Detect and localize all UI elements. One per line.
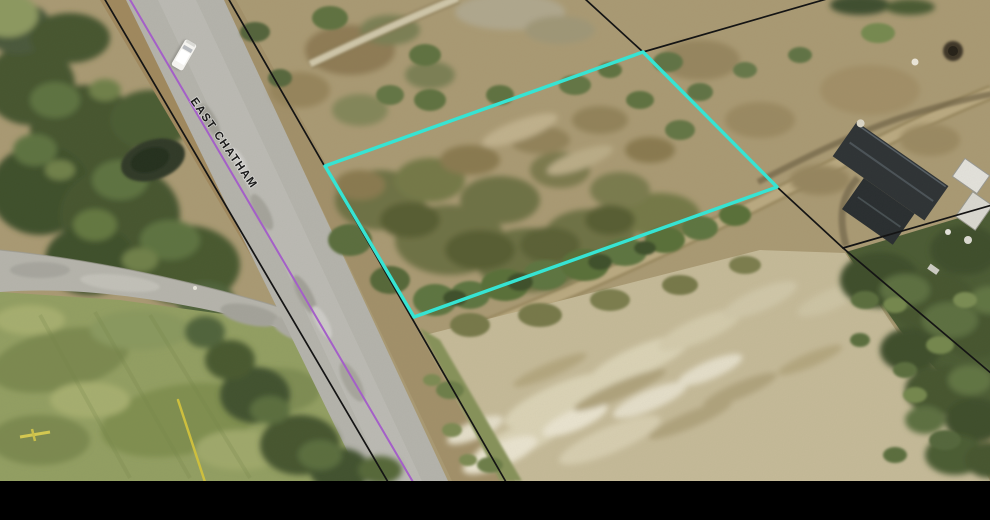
photo-grain xyxy=(0,0,990,481)
imagery-void-bar xyxy=(0,481,990,520)
aerial-map-canvas[interactable]: EAST CHATHAM xyxy=(0,0,990,520)
map-viewport[interactable]: EAST CHATHAM xyxy=(0,0,990,520)
